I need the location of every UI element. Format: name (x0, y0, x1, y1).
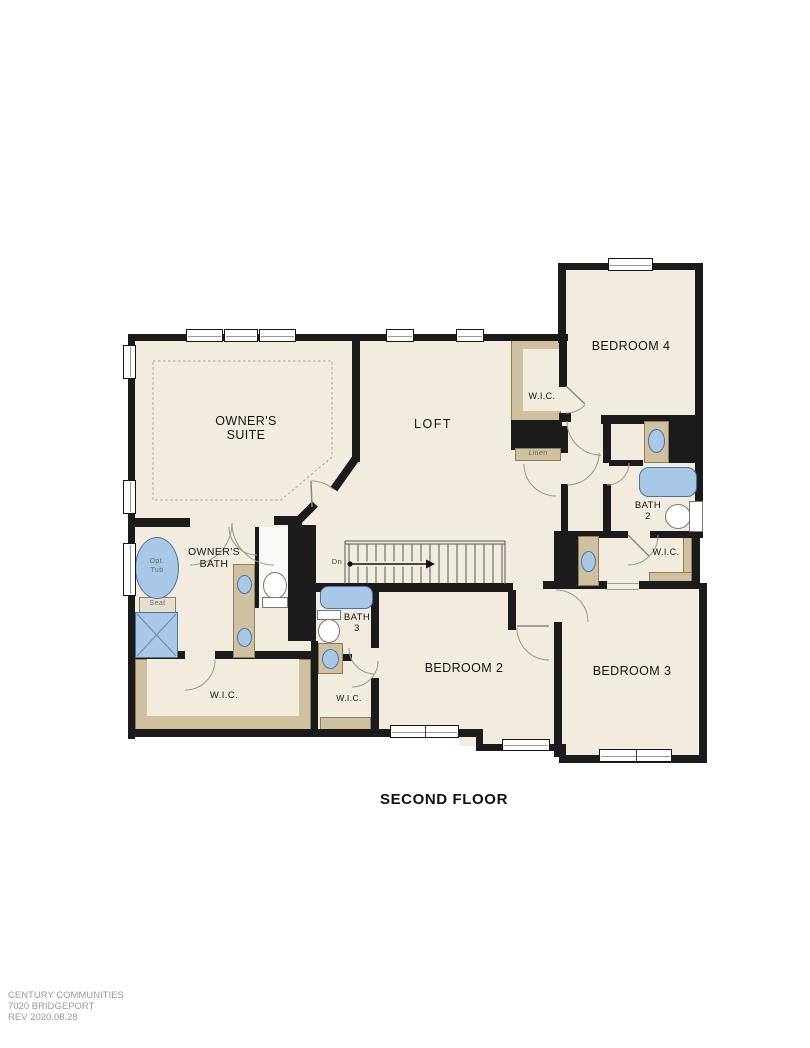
room-label-wic-bedroom3: W.I.C. (644, 547, 688, 557)
room-label-owners-bath: OWNER'S BATH (178, 546, 250, 570)
shower-x (137, 614, 176, 656)
room-label-bedroom-3: BEDROOM 3 (572, 664, 692, 678)
room-label-linen: Linen (517, 450, 559, 458)
room-label-bath-3: BATH 3 (337, 613, 377, 635)
page-title: SECOND FLOOR (354, 791, 534, 808)
room-label-loft: LOFT (393, 417, 473, 431)
fixture-label-seat: Seat (141, 600, 174, 608)
footer-plan-number: 7020 BRIDGEPORT (8, 1001, 124, 1012)
plan-linework (0, 0, 810, 1048)
room-label-wic-owners: W.I.C. (199, 691, 249, 702)
room-label-bedroom-4: BEDROOM 4 (570, 339, 692, 353)
fixture-label-opt-tub: Opt. Tub (143, 558, 171, 575)
room-label-wic-bedroom2: W.I.C. (327, 694, 371, 704)
room-label-wic-bedroom4: W.I.C. (518, 391, 566, 401)
room-label-bath-2: BATH 2 (628, 501, 668, 523)
footer-plan-info: CENTURY COMMUNITIES 7020 BRIDGEPORT REV … (8, 990, 124, 1023)
room-label-owners-suite: OWNER'S SUITE (186, 414, 306, 443)
footer-company: CENTURY COMMUNITIES (8, 990, 124, 1001)
floor-plan-page: OWNER'S SUITE LOFT BEDROOM 4 BEDROOM 2 B… (0, 0, 810, 1048)
room-label-bedroom-2: BEDROOM 2 (404, 661, 524, 675)
stairs-dn-label: Dn (328, 558, 346, 567)
footer-revision-date: REV 2020.08.28 (8, 1012, 124, 1023)
stairs-down-arrow (347, 560, 435, 569)
